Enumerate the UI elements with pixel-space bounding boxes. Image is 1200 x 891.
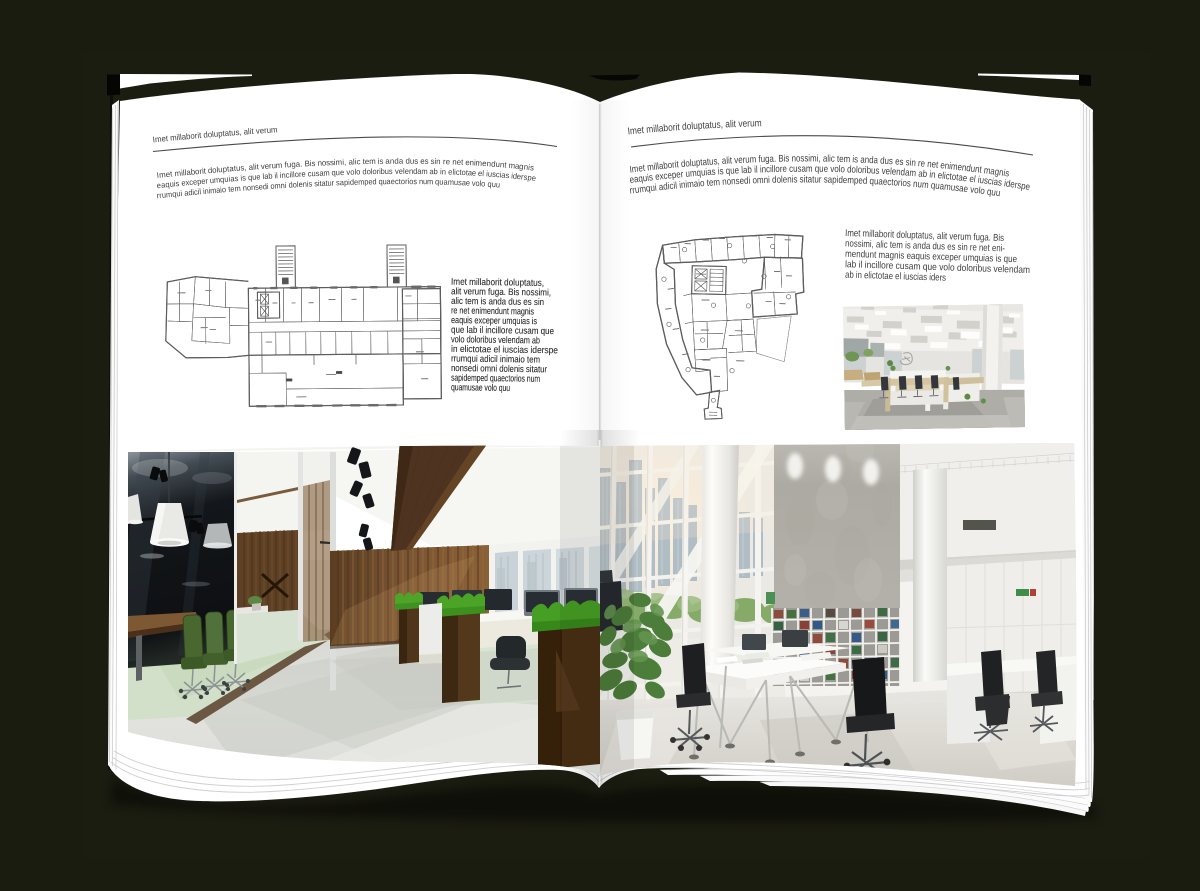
svg-text:quamusae volo quu: quamusae volo quu [451,381,510,393]
